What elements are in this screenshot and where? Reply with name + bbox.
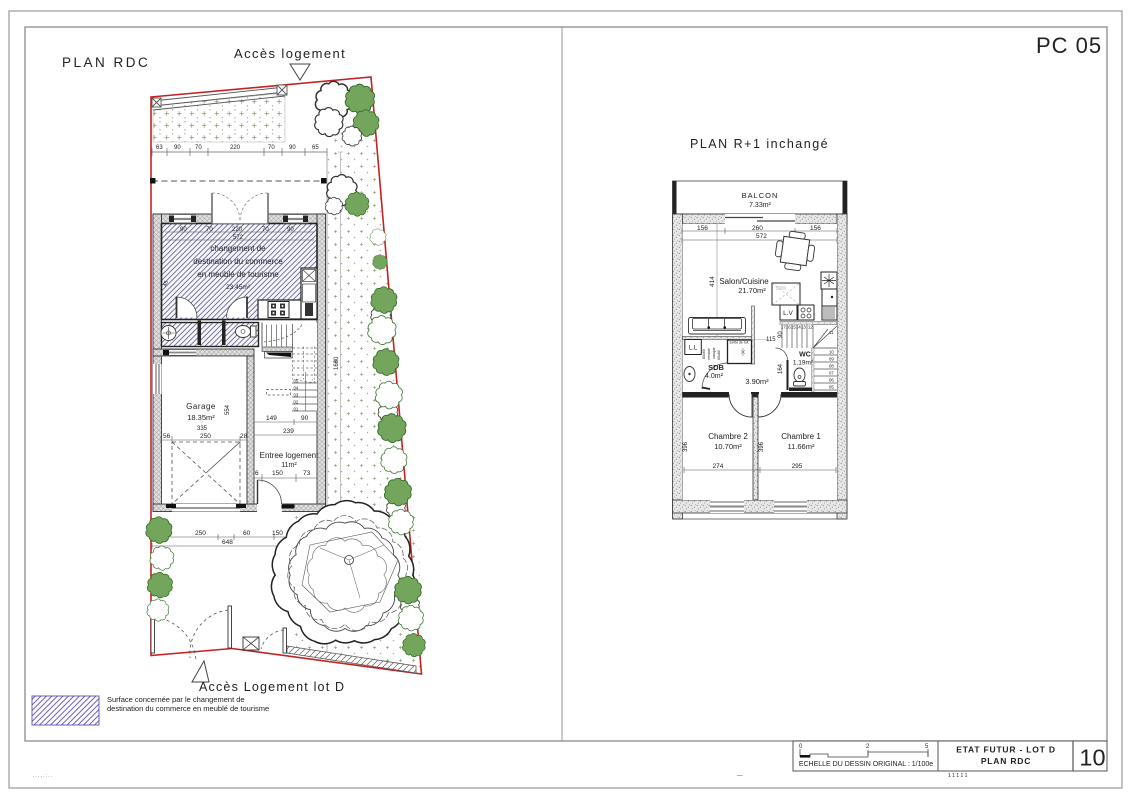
svg-text:70: 70 bbox=[268, 145, 275, 151]
svg-text:03: 03 bbox=[294, 393, 299, 398]
svg-text:10: 10 bbox=[1079, 745, 1105, 771]
svg-text:10.70m²: 10.70m² bbox=[714, 442, 742, 451]
svg-text:07: 07 bbox=[829, 371, 834, 376]
svg-text:396: 396 bbox=[759, 441, 765, 452]
svg-text:SDB: SDB bbox=[708, 363, 724, 372]
svg-text:PLAN RDC: PLAN RDC bbox=[981, 756, 1031, 766]
svg-text:ETAT FUTUR - LOT D: ETAT FUTUR - LOT D bbox=[956, 745, 1056, 755]
svg-text:295: 295 bbox=[792, 463, 803, 470]
svg-text:1680: 1680 bbox=[334, 356, 340, 370]
svg-text:PLAN R+1 inchangé: PLAN R+1 inchangé bbox=[690, 137, 829, 151]
svg-text:ECHELLE DU DESSIN ORIGINAL : 1: ECHELLE DU DESSIN ORIGINAL : 1/100e bbox=[799, 761, 933, 768]
svg-text:Entree logement: Entree logement bbox=[260, 451, 319, 460]
svg-text:554: 554 bbox=[225, 404, 231, 415]
svg-text:239: 239 bbox=[283, 428, 294, 435]
svg-text:90: 90 bbox=[174, 145, 181, 151]
svg-text:63: 63 bbox=[156, 145, 163, 151]
svg-text:Accès Logement lot D: Accès Logement lot D bbox=[199, 680, 345, 694]
svg-text:220: 220 bbox=[232, 227, 243, 233]
svg-text:10: 10 bbox=[829, 350, 834, 355]
svg-text:1.19m²: 1.19m² bbox=[793, 360, 814, 367]
svg-text:18.35m²: 18.35m² bbox=[187, 413, 215, 422]
svg-text:09: 09 bbox=[829, 357, 834, 362]
svg-text:L.L: L.L bbox=[689, 346, 698, 352]
svg-text:06: 06 bbox=[829, 378, 834, 383]
svg-text:21.70m²: 21.70m² bbox=[738, 286, 766, 295]
svg-text:destination du commerce en meu: destination du commerce en meublé de tou… bbox=[107, 704, 269, 713]
svg-text:260: 260 bbox=[752, 225, 763, 232]
svg-text:572: 572 bbox=[233, 235, 244, 241]
svg-text:73: 73 bbox=[303, 470, 311, 477]
svg-text:BALCON: BALCON bbox=[742, 191, 779, 200]
svg-text:changement de: changement de bbox=[210, 244, 266, 253]
svg-text:01: 01 bbox=[294, 407, 299, 412]
svg-text:Chambre 2: Chambre 2 bbox=[708, 432, 748, 441]
svg-text:156: 156 bbox=[697, 225, 708, 232]
svg-text:vasque: vasque bbox=[712, 347, 716, 359]
svg-text:sortie de toit: sortie de toit bbox=[729, 341, 748, 345]
svg-text:70: 70 bbox=[195, 145, 202, 151]
svg-text:70: 70 bbox=[206, 227, 213, 233]
svg-text:250: 250 bbox=[200, 433, 211, 440]
svg-text:60: 60 bbox=[243, 530, 251, 537]
svg-text:7.33m²: 7.33m² bbox=[749, 202, 771, 209]
svg-text:WC: WC bbox=[799, 352, 811, 359]
svg-text:6: 6 bbox=[255, 470, 259, 477]
svg-text:90: 90 bbox=[301, 415, 309, 422]
svg-text:90: 90 bbox=[289, 145, 296, 151]
svg-text:149: 149 bbox=[266, 415, 277, 422]
svg-text:PLAN RDC: PLAN RDC bbox=[62, 55, 150, 70]
svg-text:destination du commerce: destination du commerce bbox=[193, 257, 283, 266]
svg-text:250: 250 bbox=[195, 530, 206, 537]
svg-text:Surface concernée par le chang: Surface concernée par le changement de bbox=[107, 695, 245, 704]
svg-text:23.45m²: 23.45m² bbox=[226, 284, 251, 291]
svg-text:11m²: 11m² bbox=[281, 462, 297, 469]
svg-text:Salon/Cuisine: Salon/Cuisine bbox=[719, 277, 769, 286]
svg-text:04: 04 bbox=[294, 386, 299, 391]
svg-text:PC 05: PC 05 bbox=[1036, 33, 1102, 58]
svg-text:05: 05 bbox=[829, 385, 834, 390]
svg-text:70: 70 bbox=[262, 227, 269, 233]
svg-text:648: 648 bbox=[222, 539, 233, 546]
svg-text:12: 12 bbox=[808, 325, 813, 330]
svg-text:65: 65 bbox=[312, 145, 319, 151]
svg-text:13: 13 bbox=[801, 325, 806, 330]
svg-text:90: 90 bbox=[778, 331, 784, 338]
svg-text:08: 08 bbox=[829, 364, 834, 369]
svg-text:164: 164 bbox=[778, 363, 784, 374]
svg-text:156: 156 bbox=[810, 225, 821, 232]
svg-text:60x80: 60x80 bbox=[717, 350, 721, 360]
svg-text:274: 274 bbox=[713, 463, 724, 470]
svg-text:4.0m²: 4.0m² bbox=[705, 373, 724, 380]
svg-text:396: 396 bbox=[683, 441, 689, 452]
svg-text:meuble: meuble bbox=[707, 348, 711, 360]
svg-text:02: 02 bbox=[294, 400, 299, 405]
svg-text:en meublé de tourisme: en meublé de tourisme bbox=[197, 270, 279, 279]
svg-text:3.90m²: 3.90m² bbox=[745, 377, 769, 386]
svg-text:11.66m²: 11.66m² bbox=[788, 442, 815, 451]
svg-text:414: 414 bbox=[709, 276, 716, 287]
svg-text:1 1 1 1 1: 1 1 1 1 1 bbox=[948, 773, 968, 779]
svg-text:90: 90 bbox=[287, 227, 294, 233]
svg-text:335: 335 bbox=[197, 426, 208, 432]
svg-text:80x60: 80x60 bbox=[702, 349, 706, 359]
svg-text:115: 115 bbox=[766, 337, 776, 343]
svg-text:150: 150 bbox=[272, 470, 283, 477]
svg-text:Accès logement: Accès logement bbox=[234, 46, 346, 61]
svg-text:11: 11 bbox=[829, 330, 834, 335]
svg-text:56: 56 bbox=[163, 433, 171, 440]
svg-text:Garage: Garage bbox=[186, 402, 216, 411]
svg-text:Chambre 1: Chambre 1 bbox=[781, 432, 821, 441]
svg-text:150: 150 bbox=[272, 530, 283, 537]
svg-text:90: 90 bbox=[180, 227, 187, 233]
svg-text:572: 572 bbox=[756, 233, 767, 240]
svg-text:L.V: L.V bbox=[783, 310, 793, 317]
svg-text:28: 28 bbox=[240, 433, 248, 440]
svg-text:220: 220 bbox=[230, 145, 241, 151]
svg-text:. . . , . : . .: . . . , . : . . bbox=[33, 773, 52, 778]
svg-text:__: __ bbox=[736, 771, 743, 777]
